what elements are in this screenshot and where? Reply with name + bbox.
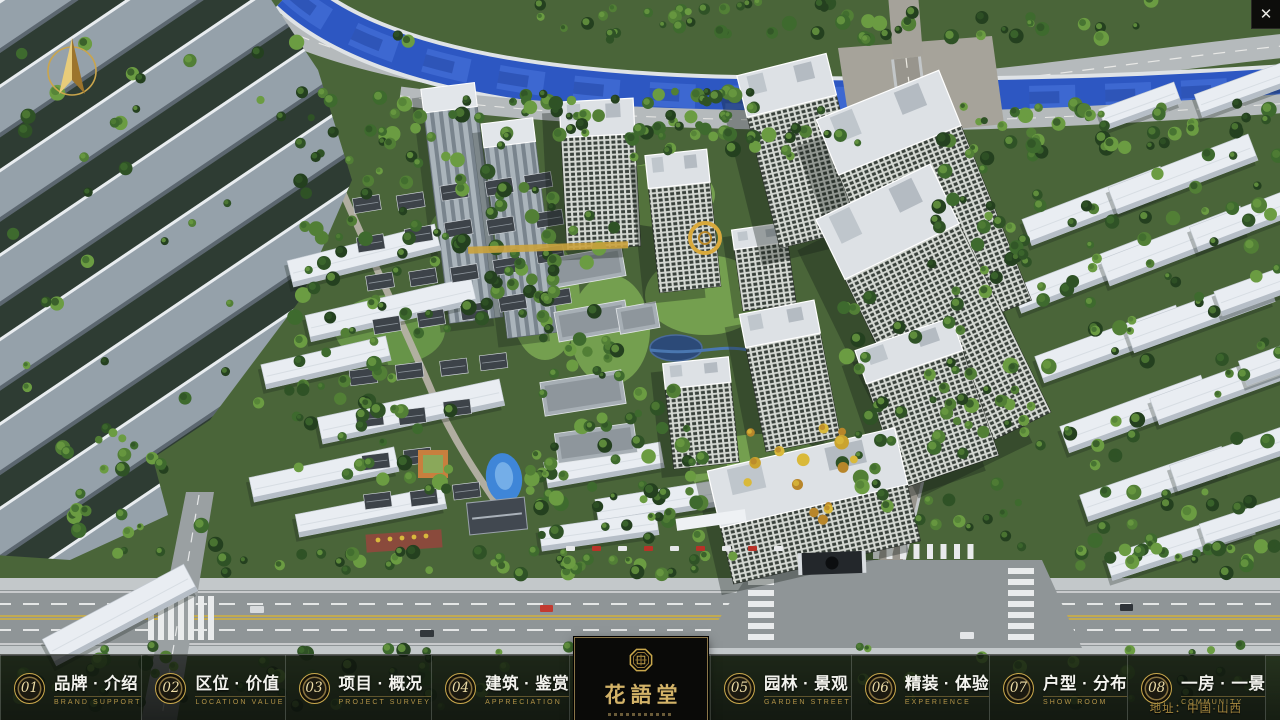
masterplan-render — [0, 0, 1280, 720]
address-text: 地址：中国·山西 — [1150, 700, 1242, 716]
close-button[interactable]: ✕ — [1251, 0, 1280, 29]
nav-number-badge: 01 — [14, 673, 45, 704]
seal-emblem-icon — [625, 644, 657, 676]
nav-item-location[interactable]: 02 区位 · 价值 LOCATION VALUE — [142, 655, 285, 720]
nav-title: 区位 · 价值 — [195, 670, 284, 694]
presentation-window: ✕ 01 品牌 · 介绍 BRAND SUPPORT 02 区位 · 价值 LO… — [0, 0, 1280, 720]
logo-tagline-rule — [608, 713, 674, 716]
nav-number-badge: 08 — [1141, 673, 1172, 704]
nav-item-garden[interactable]: 05 园林 · 景观 GARDEN STREET — [710, 655, 852, 720]
project-name: 花語堂 — [600, 679, 683, 709]
nav-group-left: 01 品牌 · 介绍 BRAND SUPPORT 02 区位 · 价值 LOCA… — [0, 655, 470, 720]
nav-number-badge: 06 — [865, 673, 896, 704]
nav-subtitle: EXPERIENCE — [905, 696, 989, 706]
nav-item-floorplan[interactable]: 07 户型 · 分布 SHOW ROOM — [990, 655, 1128, 720]
nav-subtitle: PROJECT SURVEY — [339, 696, 432, 706]
nav-subtitle: BRAND SUPPORT — [54, 696, 141, 706]
nav-item-brand[interactable]: 01 品牌 · 介绍 BRAND SUPPORT — [0, 655, 142, 720]
bottom-nav-bar: 01 品牌 · 介绍 BRAND SUPPORT 02 区位 · 价值 LOCA… — [0, 654, 1280, 720]
nav-number-badge: 07 — [1003, 673, 1034, 704]
nav-subtitle: SHOW ROOM — [1043, 696, 1127, 706]
nav-title: 品牌 · 介绍 — [54, 670, 141, 694]
nav-title: 一房 · 一景 — [1181, 670, 1265, 694]
close-icon: ✕ — [1260, 5, 1273, 23]
project-logo[interactable]: 花語堂 — [574, 637, 708, 720]
nav-number-badge: 05 — [724, 673, 755, 704]
nav-number-badge: 03 — [299, 673, 330, 704]
nav-item-experience[interactable]: 06 精装 · 体验 EXPERIENCE — [852, 655, 990, 720]
nav-subtitle: LOCATION VALUE — [195, 696, 284, 706]
nav-title: 户型 · 分布 — [1043, 670, 1127, 694]
nav-title: 园林 · 景观 — [764, 670, 851, 694]
nav-title: 项目 · 概况 — [339, 670, 432, 694]
masterplan-3d-view[interactable] — [0, 0, 1280, 720]
nav-subtitle: GARDEN STREET — [764, 696, 851, 706]
nav-item-project[interactable]: 03 项目 · 概况 PROJECT SURVEY — [286, 655, 433, 720]
nav-title: 精装 · 体验 — [905, 670, 989, 694]
nav-number-badge: 02 — [155, 673, 186, 704]
